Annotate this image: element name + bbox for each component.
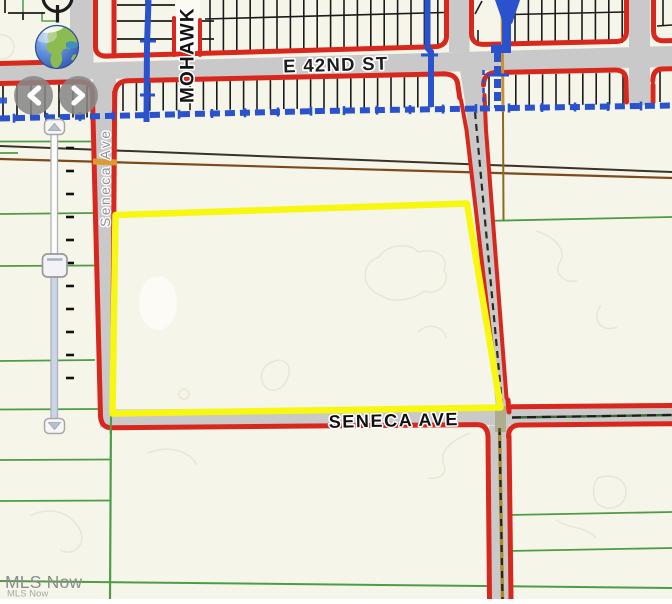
svg-text:SENECA AVE: SENECA AVE (328, 409, 459, 432)
svg-text:E 42ND ST: E 42ND ST (283, 53, 389, 77)
svg-text:MOHAWK: MOHAWK (178, 7, 199, 103)
svg-text:MLS Now: MLS Now (7, 589, 48, 600)
svg-text:Seneca Ave: Seneca Ave (97, 129, 113, 227)
